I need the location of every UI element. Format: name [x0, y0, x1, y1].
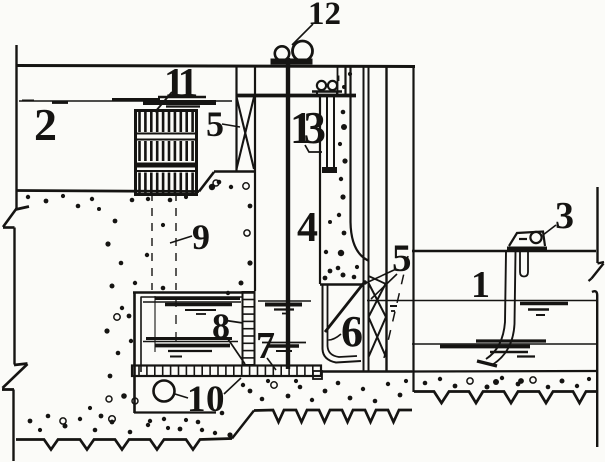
svg-text:6: 6 [341, 307, 363, 356]
svg-text:5: 5 [206, 104, 224, 144]
svg-text:5: 5 [392, 237, 412, 280]
svg-text:3: 3 [555, 195, 574, 237]
svg-text:2: 2 [34, 99, 57, 150]
svg-text:1: 1 [471, 264, 490, 306]
svg-text:9: 9 [192, 217, 210, 257]
svg-text:4: 4 [297, 205, 318, 251]
svg-text:12: 12 [308, 0, 341, 32]
svg-text:7: 7 [256, 325, 275, 367]
svg-text:11: 11 [164, 59, 197, 105]
svg-text:10: 10 [187, 379, 225, 420]
svg-text:8: 8 [212, 306, 230, 346]
